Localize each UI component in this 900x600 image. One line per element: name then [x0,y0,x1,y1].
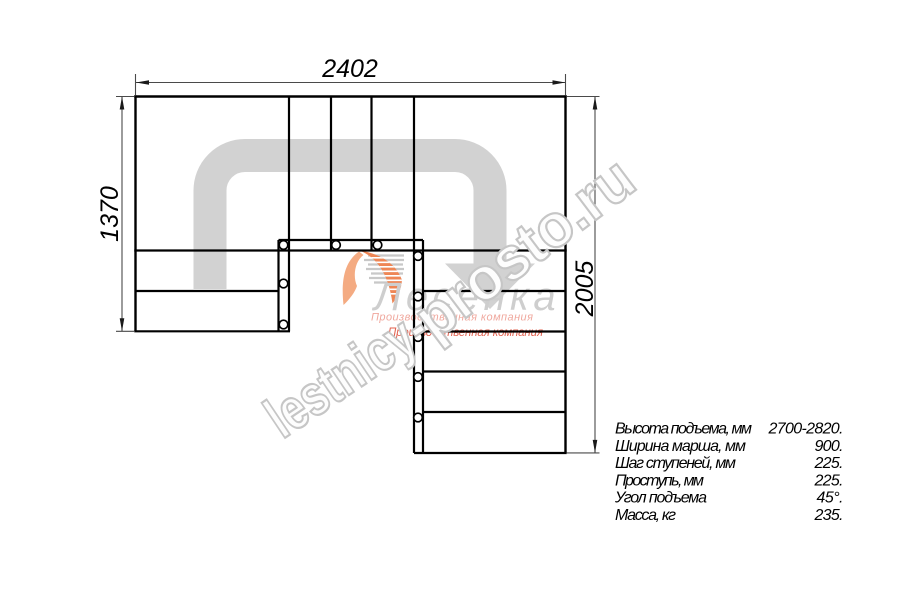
svg-text:225.: 225. [814,472,844,489]
svg-text:2402: 2402 [321,55,378,83]
svg-text:225.: 225. [814,455,844,472]
svg-text:Проступь, мм: Проступь, мм [615,472,704,489]
svg-text:Угол подъема: Угол подъема [614,490,707,507]
svg-text:2700-2820.: 2700-2820. [768,421,844,438]
svg-text:2005: 2005 [571,261,599,318]
svg-text:45°.: 45°. [817,490,844,507]
svg-text:lestnicy-: lestnicy- [253,296,440,451]
svg-text:235.: 235. [814,507,844,524]
svg-text:Высота подъема, мм: Высота подъема, мм [615,421,752,438]
svg-text:1370: 1370 [96,186,124,242]
svg-text:900.: 900. [815,438,844,455]
svg-text:Шаг ступеней, мм: Шаг ступеней, мм [615,455,736,472]
svg-text:Ширина марша, мм: Ширина марша, мм [615,438,746,455]
svg-text:Масса, кг: Масса, кг [615,507,676,524]
